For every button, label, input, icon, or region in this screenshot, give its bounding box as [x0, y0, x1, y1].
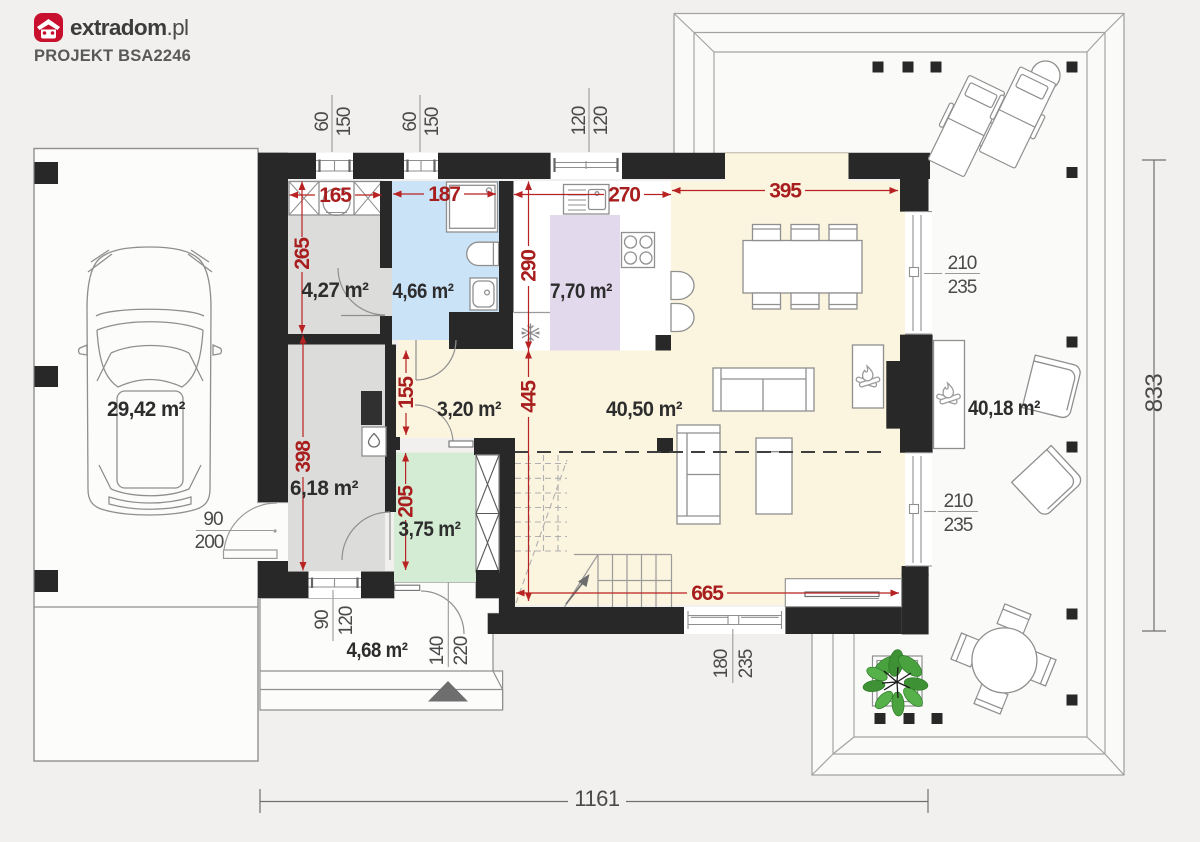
svg-text:150: 150: [334, 107, 355, 136]
svg-text:833: 833: [1141, 374, 1168, 413]
svg-text:205: 205: [395, 485, 418, 518]
svg-text:4,66 m²: 4,66 m²: [393, 280, 454, 303]
svg-text:120: 120: [569, 106, 590, 135]
svg-text:1161: 1161: [574, 786, 620, 811]
svg-text:395: 395: [769, 180, 802, 203]
svg-text:120: 120: [336, 606, 357, 635]
svg-text:270: 270: [608, 184, 640, 207]
svg-text:155: 155: [395, 376, 418, 409]
svg-text:210: 210: [948, 253, 977, 274]
svg-text:90: 90: [203, 509, 223, 530]
svg-text:665: 665: [691, 582, 724, 605]
svg-text:90: 90: [312, 610, 333, 630]
svg-text:265: 265: [291, 237, 314, 270]
svg-text:120: 120: [591, 106, 612, 135]
svg-text:445: 445: [518, 380, 541, 413]
svg-text:29,42 m²: 29,42 m²: [107, 398, 185, 421]
svg-text:6,18 m²: 6,18 m²: [290, 477, 358, 500]
svg-text:150: 150: [422, 107, 443, 136]
svg-text:60: 60: [312, 112, 333, 132]
svg-text:200: 200: [195, 532, 224, 553]
svg-text:220: 220: [451, 636, 472, 665]
svg-text:187: 187: [428, 183, 460, 206]
svg-text:398: 398: [292, 440, 315, 473]
svg-text:PROJEKT BSA2246: PROJEKT BSA2246: [34, 47, 191, 65]
svg-text:40,50 m²: 40,50 m²: [606, 398, 682, 421]
svg-text:60: 60: [400, 112, 421, 132]
svg-text:140: 140: [427, 636, 448, 665]
svg-text:extradom.pl: extradom.pl: [70, 15, 188, 40]
svg-text:4,68 m²: 4,68 m²: [347, 639, 408, 662]
svg-text:4,27 m²: 4,27 m²: [302, 279, 369, 302]
svg-text:180: 180: [711, 649, 732, 678]
svg-text:40,18 m²: 40,18 m²: [968, 397, 1040, 420]
svg-text:290: 290: [518, 250, 541, 282]
svg-text:235: 235: [948, 277, 977, 298]
svg-text:235: 235: [944, 515, 973, 536]
svg-text:7,70 m²: 7,70 m²: [550, 280, 612, 303]
svg-text:235: 235: [736, 649, 757, 678]
svg-text:210: 210: [944, 491, 973, 512]
svg-text:165: 165: [319, 184, 352, 207]
svg-text:3,20 m²: 3,20 m²: [437, 398, 501, 421]
svg-text:3,75 m²: 3,75 m²: [399, 518, 461, 541]
